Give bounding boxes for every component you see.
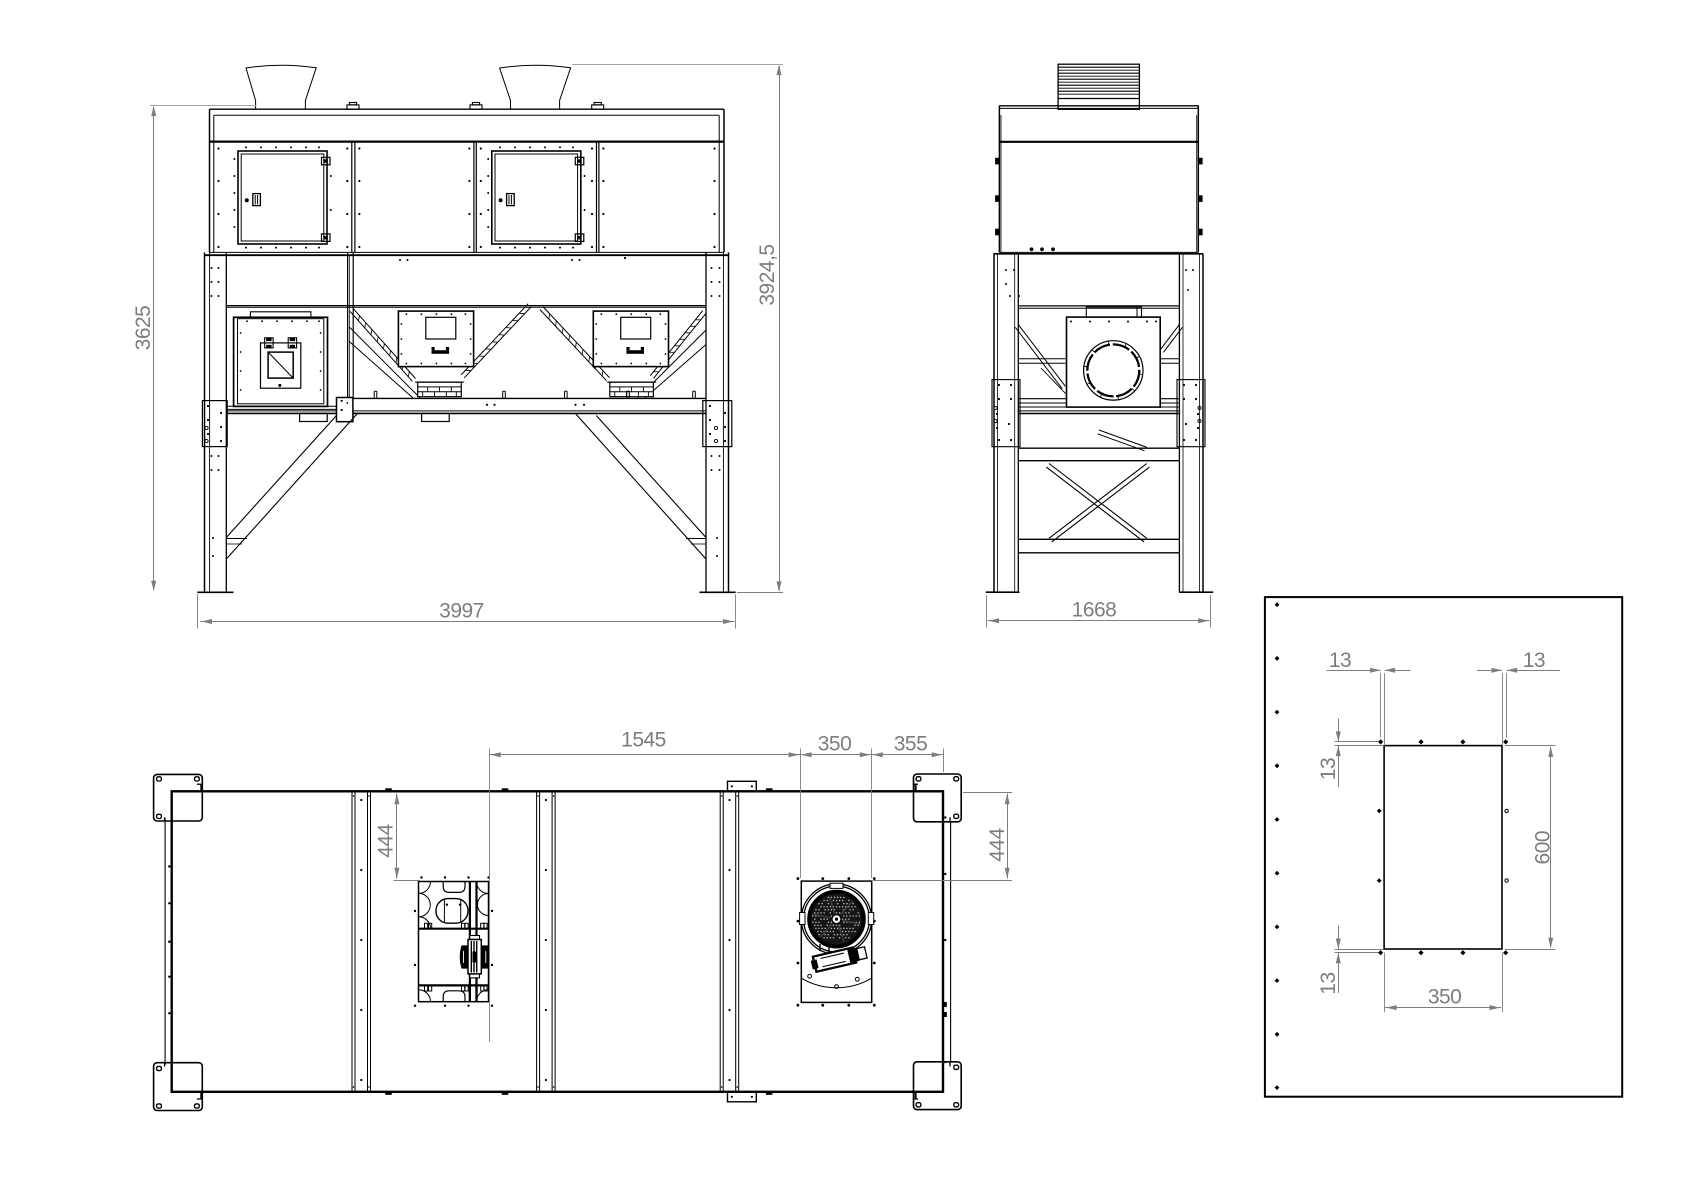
svg-text:444: 444 xyxy=(375,823,398,857)
svg-text:13: 13 xyxy=(1317,972,1340,994)
svg-text:13: 13 xyxy=(1317,758,1340,780)
svg-text:1668: 1668 xyxy=(1072,599,1117,622)
svg-text:444: 444 xyxy=(986,827,1009,861)
svg-text:13: 13 xyxy=(1523,649,1545,672)
svg-text:350: 350 xyxy=(1428,985,1462,1008)
svg-text:1545: 1545 xyxy=(621,729,666,752)
svg-text:600: 600 xyxy=(1532,831,1555,865)
svg-text:13: 13 xyxy=(1329,649,1351,672)
svg-text:3924,5: 3924,5 xyxy=(756,244,779,305)
svg-text:3625: 3625 xyxy=(132,306,155,351)
svg-text:3997: 3997 xyxy=(439,600,484,623)
svg-text:350: 350 xyxy=(818,733,852,756)
svg-text:355: 355 xyxy=(894,733,928,756)
